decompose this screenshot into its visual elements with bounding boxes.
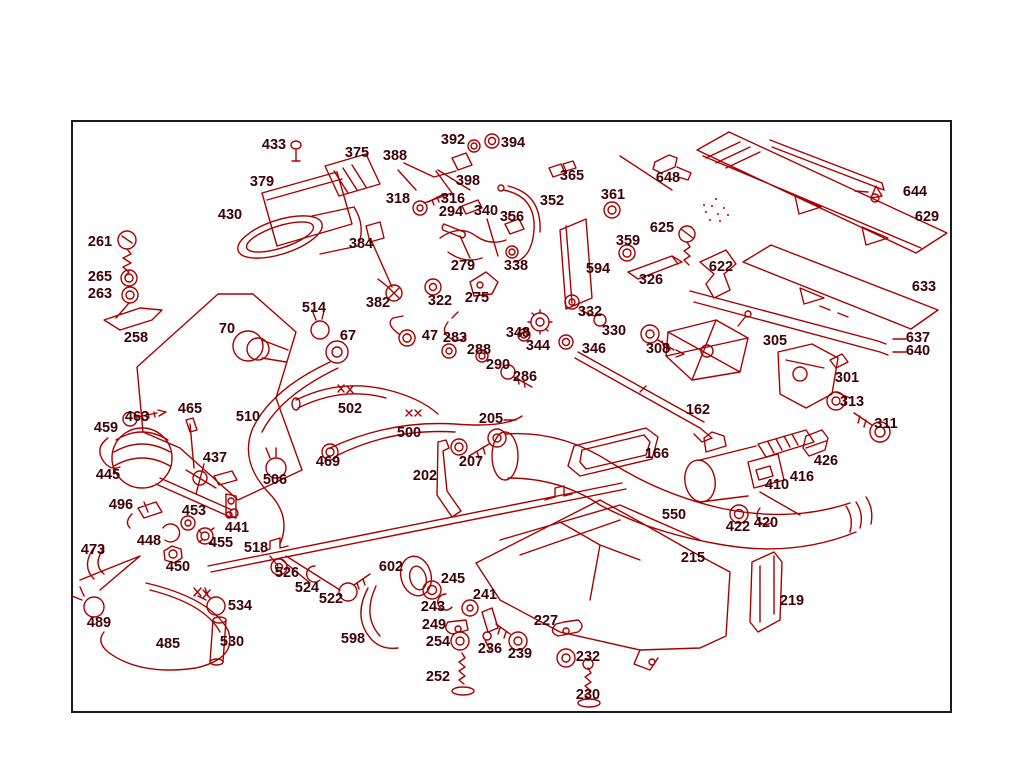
part-label-629[interactable]: 629: [915, 210, 939, 225]
part-label-67[interactable]: 67: [340, 329, 356, 344]
part-label-518[interactable]: 518: [244, 541, 268, 556]
part-label-243[interactable]: 243: [421, 600, 445, 615]
part-label-384[interactable]: 384: [349, 237, 373, 252]
part-label-420[interactable]: 420: [754, 516, 778, 531]
part-label-202[interactable]: 202: [413, 469, 437, 484]
part-label-288[interactable]: 288: [467, 343, 491, 358]
part-label-261[interactable]: 261: [88, 235, 112, 250]
part-label-430[interactable]: 430: [218, 208, 242, 223]
part-label-70[interactable]: 70: [219, 322, 235, 337]
part-label-279[interactable]: 279: [451, 259, 475, 274]
part-label-594[interactable]: 594: [586, 262, 610, 277]
part-label-258[interactable]: 258: [124, 331, 148, 346]
part-label-392[interactable]: 392: [441, 133, 465, 148]
part-label-622[interactable]: 622: [709, 260, 733, 275]
part-label-311[interactable]: 311: [874, 417, 897, 432]
part-label-398[interactable]: 398: [456, 174, 480, 189]
part-label-522[interactable]: 522: [319, 592, 343, 607]
part-label-326[interactable]: 326: [639, 273, 663, 288]
part-label-219[interactable]: 219: [780, 594, 804, 609]
part-label-394[interactable]: 394: [501, 136, 525, 151]
part-label-448[interactable]: 448: [137, 534, 161, 549]
part-label-215[interactable]: 215: [681, 551, 705, 566]
part-label-514[interactable]: 514: [302, 301, 326, 316]
part-label-305[interactable]: 305: [763, 334, 787, 349]
part-label-332[interactable]: 332: [578, 305, 602, 320]
part-label-239[interactable]: 239: [508, 647, 532, 662]
part-label-330[interactable]: 330: [602, 324, 626, 339]
part-label-340[interactable]: 340: [474, 204, 498, 219]
part-label-318[interactable]: 318: [386, 192, 410, 207]
part-label-361[interactable]: 361: [601, 188, 625, 203]
part-label-506[interactable]: 506: [263, 473, 287, 488]
part-label-254[interactable]: 254: [426, 635, 450, 650]
part-label-463[interactable]: 463: [125, 410, 149, 425]
part-label-526[interactable]: 526: [275, 566, 299, 581]
part-label-375[interactable]: 375: [345, 146, 369, 161]
diagram-page: 4333923943753883656483793986443613163183…: [0, 0, 1024, 769]
part-label-346[interactable]: 346: [582, 342, 606, 357]
part-label-344[interactable]: 344: [526, 339, 550, 354]
part-label-459[interactable]: 459: [94, 421, 118, 436]
part-label-338[interactable]: 338: [504, 259, 528, 274]
part-label-241[interactable]: 241: [473, 588, 497, 603]
part-label-422[interactable]: 422: [726, 520, 750, 535]
part-label-382[interactable]: 382: [366, 296, 390, 311]
part-label-602[interactable]: 602: [379, 560, 403, 575]
part-label-496[interactable]: 496: [109, 498, 133, 513]
part-label-227[interactable]: 227: [534, 614, 558, 629]
part-label-530[interactable]: 530: [220, 635, 244, 650]
part-label-633[interactable]: 633: [912, 280, 936, 295]
part-label-283[interactable]: 283: [443, 331, 467, 346]
part-label-388[interactable]: 388: [383, 149, 407, 164]
part-label-365[interactable]: 365: [560, 169, 584, 184]
part-label-166[interactable]: 166: [645, 447, 669, 462]
part-label-265[interactable]: 265: [88, 270, 112, 285]
part-label-426[interactable]: 426: [814, 454, 838, 469]
part-label-489[interactable]: 489: [87, 616, 111, 631]
part-label-252[interactable]: 252: [426, 670, 450, 685]
part-label-236[interactable]: 236: [478, 642, 502, 657]
part-label-644[interactable]: 644: [903, 185, 927, 200]
part-label-524[interactable]: 524: [295, 581, 319, 596]
part-label-207[interactable]: 207: [459, 455, 483, 470]
part-label-290[interactable]: 290: [486, 358, 510, 373]
part-label-473[interactable]: 473: [81, 543, 105, 558]
part-label-322[interactable]: 322: [428, 294, 452, 309]
part-label-550[interactable]: 550: [662, 508, 686, 523]
part-label-416[interactable]: 416: [790, 470, 814, 485]
part-label-450[interactable]: 450: [166, 560, 190, 575]
part-label-301[interactable]: 301: [835, 371, 859, 386]
part-label-286[interactable]: 286: [513, 370, 537, 385]
part-label-162[interactable]: 162: [686, 403, 710, 418]
part-label-359[interactable]: 359: [616, 234, 640, 249]
part-label-263[interactable]: 263: [88, 287, 112, 302]
part-label-445[interactable]: 445: [96, 468, 120, 483]
part-label-500[interactable]: 500: [397, 426, 421, 441]
part-label-352[interactable]: 352: [540, 194, 564, 209]
part-label-510[interactable]: 510: [236, 410, 260, 425]
part-label-453[interactable]: 453: [182, 504, 206, 519]
part-label-465[interactable]: 465: [178, 402, 202, 417]
part-label-249[interactable]: 249: [422, 618, 446, 633]
part-label-640[interactable]: 640: [906, 344, 930, 359]
part-label-502[interactable]: 502: [338, 402, 362, 417]
part-label-232[interactable]: 232: [576, 650, 600, 665]
part-label-275[interactable]: 275: [465, 291, 489, 306]
part-label-469[interactable]: 469: [316, 455, 340, 470]
part-label-437[interactable]: 437: [203, 451, 227, 466]
part-label-410[interactable]: 410: [765, 478, 789, 493]
part-label-308[interactable]: 308: [646, 342, 670, 357]
part-label-230[interactable]: 230: [576, 688, 600, 703]
part-label-205[interactable]: 205: [479, 412, 503, 427]
part-label-294[interactable]: 294: [439, 205, 463, 220]
part-label-433[interactable]: 433: [262, 138, 286, 153]
part-label-485[interactable]: 485: [156, 637, 180, 652]
part-label-245[interactable]: 245: [441, 572, 465, 587]
part-labels: 4333923943753883656483793986443613163183…: [0, 0, 1024, 769]
part-label-598[interactable]: 598: [341, 632, 365, 647]
part-label-625[interactable]: 625: [650, 221, 674, 236]
part-label-313[interactable]: 313: [840, 395, 864, 410]
part-label-648[interactable]: 648: [656, 171, 680, 186]
part-label-534[interactable]: 534: [228, 599, 252, 614]
part-label-356[interactable]: 356: [500, 210, 524, 225]
part-label-379[interactable]: 379: [250, 175, 274, 190]
part-label-47[interactable]: 47: [422, 329, 438, 344]
part-label-455[interactable]: 455: [209, 536, 233, 551]
part-label-441[interactable]: 441: [225, 521, 249, 536]
